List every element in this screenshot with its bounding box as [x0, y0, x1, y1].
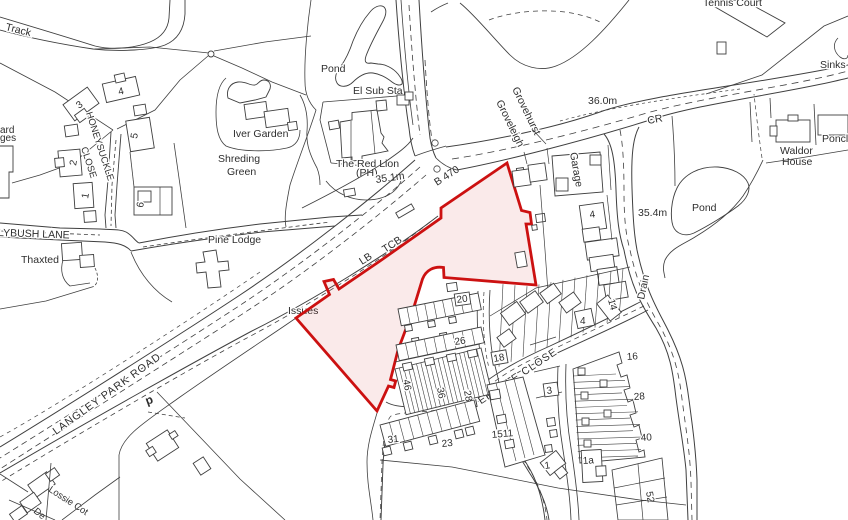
svg-text:20: 20	[456, 293, 469, 306]
svg-text:Pine Lodge: Pine Lodge	[208, 234, 261, 246]
svg-text:23: 23	[441, 438, 454, 450]
svg-text:16: 16	[626, 351, 638, 363]
svg-text:35.4m: 35.4m	[638, 207, 667, 219]
svg-text:Tennis Court: Tennis Court	[703, 0, 762, 9]
svg-text:40: 40	[640, 432, 652, 444]
svg-text:El Sub Sta: El Sub Sta	[353, 85, 403, 97]
svg-text:31: 31	[387, 434, 400, 446]
svg-text:ges: ges	[0, 133, 16, 144]
svg-text:Iver Garden: Iver Garden	[233, 128, 289, 140]
svg-text:1a: 1a	[582, 455, 594, 467]
svg-text:28: 28	[633, 391, 645, 403]
svg-text:1511: 1511	[491, 428, 514, 441]
svg-text:36.0m: 36.0m	[588, 95, 617, 107]
svg-text:4: 4	[580, 316, 586, 327]
svg-text:26: 26	[454, 335, 467, 348]
svg-text:House: House	[782, 156, 813, 168]
svg-text:Green: Green	[227, 166, 256, 178]
svg-text:Sinks: Sinks	[820, 59, 846, 71]
svg-text:LYBUSH LANE: LYBUSH LANE	[0, 227, 70, 241]
svg-text:Ponclose: Ponclose	[822, 133, 848, 145]
svg-text:Shreding: Shreding	[218, 153, 260, 165]
svg-text:Pond: Pond	[692, 202, 717, 214]
svg-text:Thaxted: Thaxted	[21, 254, 59, 266]
svg-text:Pond: Pond	[321, 63, 346, 75]
